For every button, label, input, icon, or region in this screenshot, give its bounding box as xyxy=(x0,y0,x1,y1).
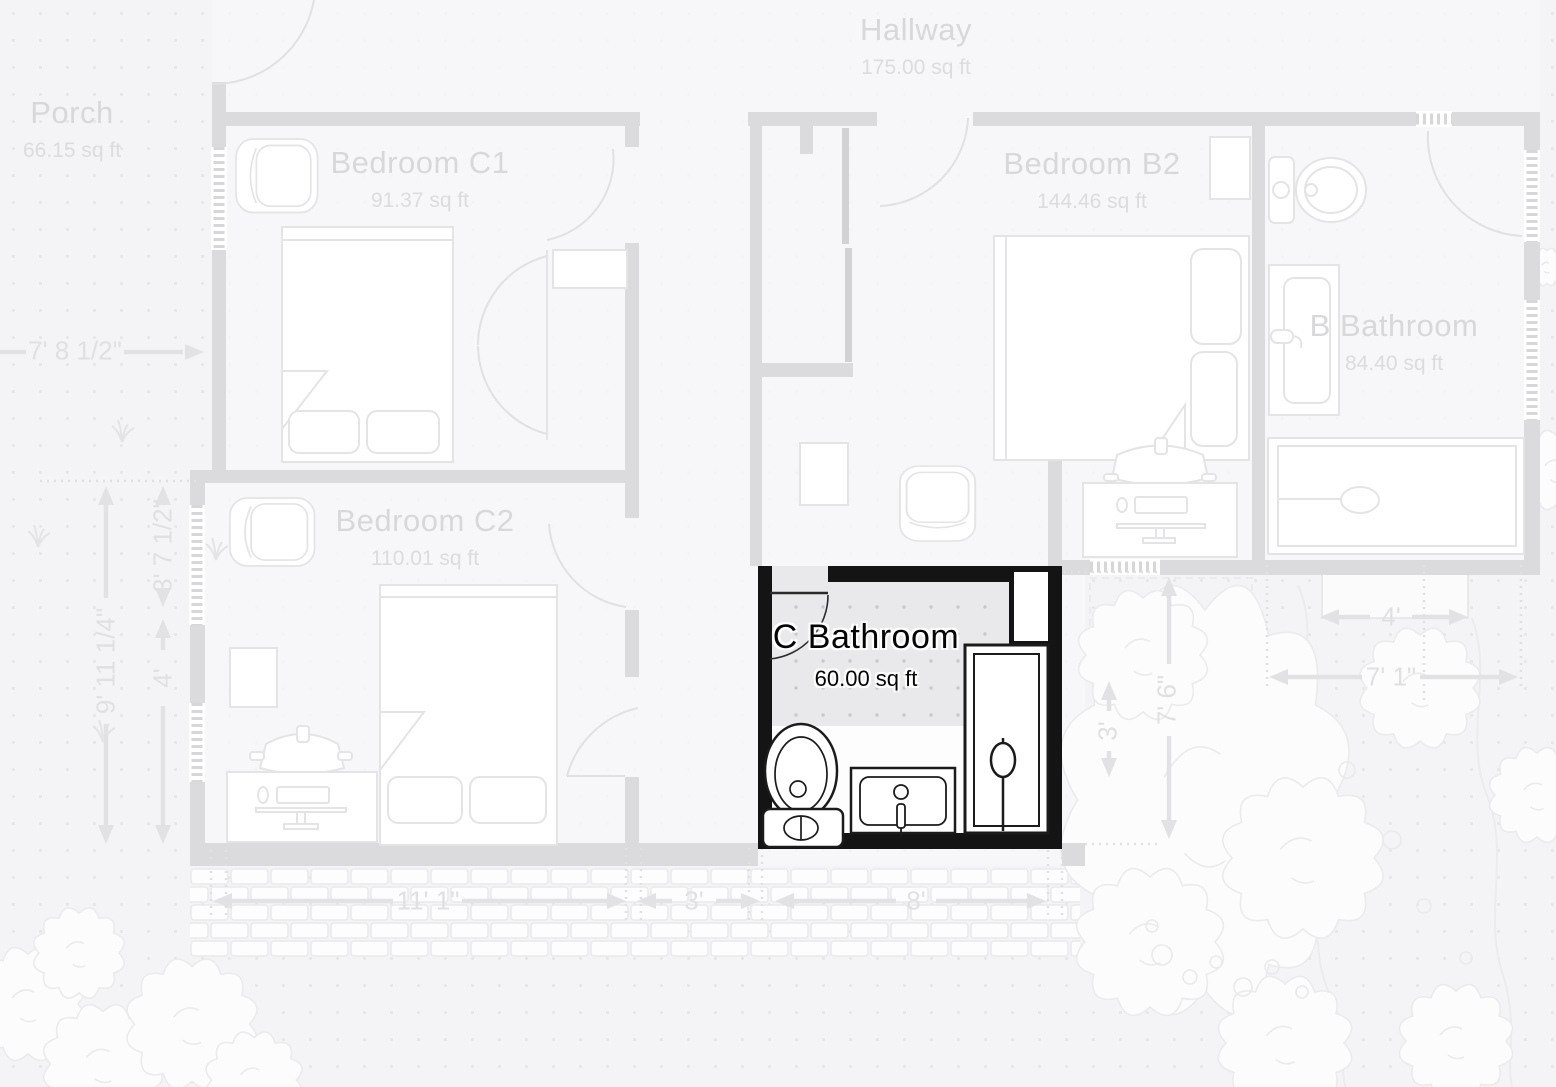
room-area: 144.46 sq ft xyxy=(1003,190,1180,214)
window-icon xyxy=(189,703,205,782)
bush-icon xyxy=(34,908,124,998)
room-name: Hallway xyxy=(860,12,972,48)
dimension-label: 9' 11 1/4" xyxy=(91,608,122,714)
shower-icon xyxy=(965,645,1048,833)
dimension-label: 7' 8 1/2" xyxy=(28,336,122,367)
window-icon xyxy=(1416,111,1452,127)
armchair-icon xyxy=(236,139,318,213)
dimension-label: 7' 6" xyxy=(1152,675,1183,725)
room-c-bathroom[interactable] xyxy=(758,566,1062,849)
room-name: Bedroom B2 xyxy=(1003,146,1180,182)
room-area: 175.00 sq ft xyxy=(860,56,972,80)
tree-icon xyxy=(1077,869,1224,1016)
tree-icon xyxy=(1400,985,1513,1087)
floor-plan-canvas[interactable]: Porch 66.15 sq ft Hallway 175.00 sq ft B… xyxy=(0,0,1556,1087)
faded-floor-plan xyxy=(0,0,1556,1087)
brick-patio xyxy=(190,868,1080,958)
window-icon xyxy=(1524,300,1540,420)
room-label-c-bathroom-selected[interactable]: C Bathroom 60.00 sq ft xyxy=(773,618,959,692)
window-icon xyxy=(189,505,205,625)
room-area: 66.15 sq ft xyxy=(23,139,121,163)
dimension-label: 7' 1" xyxy=(1366,662,1416,693)
room-label-bedroom-c2[interactable]: Bedroom C2 110.01 sq ft xyxy=(335,503,514,571)
room-area: 84.40 sq ft xyxy=(1310,352,1479,376)
dimension-label: 4' xyxy=(148,668,179,687)
room-label-porch[interactable]: Porch 66.15 sq ft xyxy=(23,95,121,163)
bed-icon xyxy=(380,585,557,845)
room-label-b-bathroom[interactable]: B Bathroom 84.40 sq ft xyxy=(1310,308,1479,376)
sink-icon xyxy=(851,768,955,836)
bed-icon xyxy=(282,227,453,462)
floor-plan-drawing xyxy=(0,0,1556,1087)
toilet-icon xyxy=(1269,157,1366,223)
room-name: B Bathroom xyxy=(1310,308,1479,344)
room-name: Bedroom C2 xyxy=(335,503,514,539)
toilet-icon xyxy=(763,724,843,847)
room-area: 110.01 sq ft xyxy=(335,547,514,571)
rug xyxy=(800,443,848,505)
room-label-bedroom-c1[interactable]: Bedroom C1 91.37 sq ft xyxy=(330,145,509,213)
dimension-label: 4' xyxy=(1381,602,1400,633)
tree-icon xyxy=(1218,976,1351,1087)
c-bathroom-alcove xyxy=(1009,572,1048,646)
room-area: 91.37 sq ft xyxy=(330,189,509,213)
dimension-label: 3' 7 1/2" xyxy=(148,499,179,593)
dimension-label: 8' xyxy=(906,886,925,917)
room-name: Porch xyxy=(23,95,121,131)
bed-icon xyxy=(994,236,1249,460)
tree-icon xyxy=(1490,748,1556,843)
dimension-label: 11' 1" xyxy=(397,886,460,917)
window-icon xyxy=(211,147,227,250)
room-name: Bedroom C1 xyxy=(330,145,509,181)
rug xyxy=(230,648,277,707)
tree-icon xyxy=(1079,591,1208,720)
armchair-icon xyxy=(900,466,975,541)
bathtub-icon xyxy=(1268,438,1524,554)
armchair-icon xyxy=(230,498,314,566)
room-label-bedroom-b2[interactable]: Bedroom B2 144.46 sq ft xyxy=(1003,146,1180,214)
room-label-hallway[interactable]: Hallway 175.00 sq ft xyxy=(860,12,972,80)
nightstand xyxy=(1210,137,1250,199)
dimension-label: 3' xyxy=(1093,721,1124,740)
tree-icon xyxy=(1223,778,1383,938)
dimension-label: 3' xyxy=(684,886,703,917)
window-icon xyxy=(1524,150,1540,242)
room-area: 60.00 sq ft xyxy=(773,666,959,692)
room-name: C Bathroom xyxy=(773,618,959,657)
